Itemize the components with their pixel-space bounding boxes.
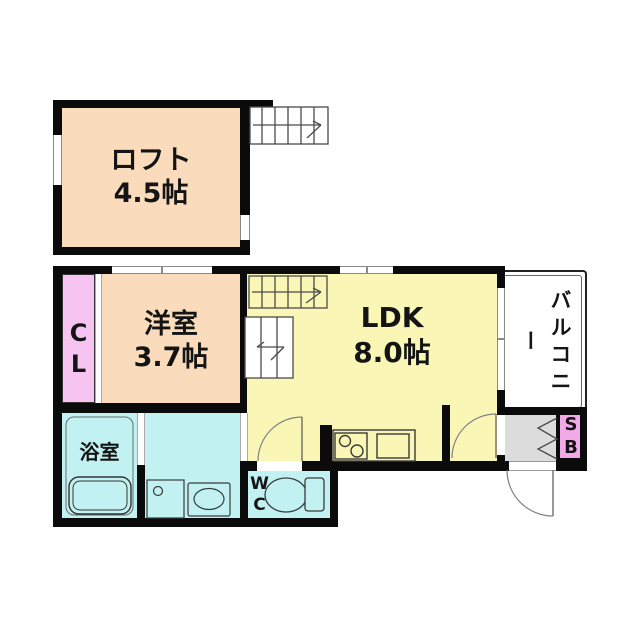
ldk-size: 8.0帖 xyxy=(292,335,492,370)
western-room-name: 洋室 xyxy=(102,308,240,341)
western-room-size: 3.7帖 xyxy=(102,341,240,374)
main-wall-left xyxy=(53,274,62,527)
room-bathroom xyxy=(62,413,137,518)
loft-window-right xyxy=(240,215,250,240)
loft-wall-right-upper xyxy=(240,108,250,215)
wall-bottom-band-1 xyxy=(240,461,257,471)
room-entry xyxy=(505,415,558,461)
wall-bottom-band-3 xyxy=(556,461,587,471)
main-wall-bottom xyxy=(53,518,338,527)
wall-western-ldk xyxy=(240,266,247,413)
main-wall-top-3 xyxy=(393,266,505,274)
ldk-wall-right-top xyxy=(497,266,505,288)
front-door xyxy=(507,470,553,516)
wc-wall-right xyxy=(330,471,338,518)
closet-opening xyxy=(95,274,102,403)
main-wall-top-2 xyxy=(212,266,340,274)
wc-label: WC xyxy=(247,473,272,517)
entry-opening xyxy=(497,415,505,455)
wall-bottom-band-2 xyxy=(302,461,509,471)
closet-text: CL xyxy=(65,319,93,381)
floorplan: ロフト 4.5帖 バルコニー SB xyxy=(0,0,640,640)
loft-name: ロフト xyxy=(62,144,240,177)
loft-window-left xyxy=(53,135,62,185)
loft-wall-left-lower xyxy=(53,185,62,247)
western-room-label: 洋室 3.7帖 xyxy=(102,308,240,374)
balcony-label: バルコニー xyxy=(505,278,585,408)
main-window-top-left xyxy=(112,266,212,274)
ldk-name: LDK xyxy=(292,300,492,335)
front-doorway xyxy=(509,461,556,471)
balcony-sliding-window xyxy=(497,288,505,390)
balcony-name: バルコニー xyxy=(515,278,575,408)
entry-partition-stub xyxy=(442,405,450,461)
loft-wall-bottom xyxy=(53,247,250,255)
bathroom-label: 浴室 xyxy=(62,436,137,465)
window-divider xyxy=(161,267,163,273)
loft-wall-top xyxy=(53,100,273,108)
loft-wall-left-upper xyxy=(53,108,62,135)
loft-size: 4.5帖 xyxy=(62,177,240,210)
ldk-label: LDK 8.0帖 xyxy=(292,300,492,370)
wc-text: WC xyxy=(250,474,270,516)
loft-stairs xyxy=(250,107,328,144)
bathroom-door-opening xyxy=(137,413,145,465)
kitchen-stub-wall xyxy=(320,425,332,461)
wall-bath-washroom xyxy=(137,465,145,518)
window-divider xyxy=(366,267,368,273)
main-wall-top-1 xyxy=(53,266,112,274)
main-window-top-right xyxy=(340,266,393,274)
wc-door-opening xyxy=(257,461,302,471)
shoe-box-label: SB xyxy=(561,414,582,460)
loft-label: ロフト 4.5帖 xyxy=(62,144,240,210)
closet-label: CL xyxy=(62,310,95,390)
washroom-door-opening xyxy=(240,413,248,461)
window-divider xyxy=(498,338,504,340)
wall-western-bottom xyxy=(53,403,247,413)
room-washroom xyxy=(145,413,240,518)
